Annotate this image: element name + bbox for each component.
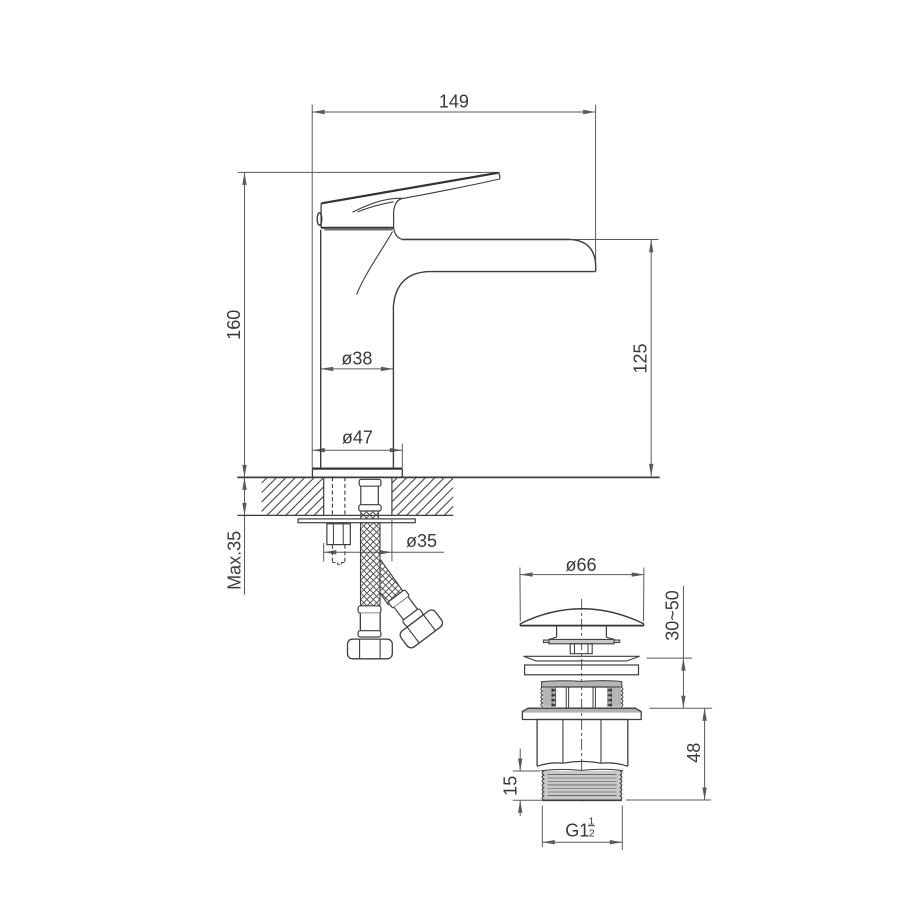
svg-text:2: 2 bbox=[589, 827, 595, 839]
svg-text:160: 160 bbox=[224, 310, 244, 340]
svg-text:125: 125 bbox=[630, 343, 650, 373]
svg-text:Max.35: Max.35 bbox=[225, 531, 245, 590]
svg-text:15: 15 bbox=[500, 776, 520, 796]
svg-text:48: 48 bbox=[684, 743, 704, 763]
svg-text:149: 149 bbox=[439, 92, 469, 112]
svg-text:30~50: 30~50 bbox=[663, 590, 683, 641]
svg-text:ø47: ø47 bbox=[342, 428, 373, 448]
svg-text:ø38: ø38 bbox=[341, 349, 372, 369]
svg-text:ø66: ø66 bbox=[565, 555, 596, 575]
svg-text:ø35: ø35 bbox=[406, 531, 437, 551]
svg-text:G1: G1 bbox=[565, 820, 589, 840]
